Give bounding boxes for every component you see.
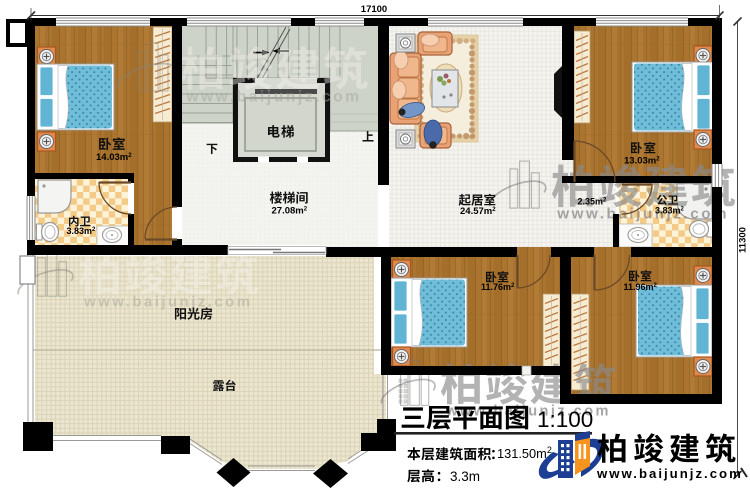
svg-text:www.baijunjz.com: www.baijunjz.com — [185, 89, 361, 106]
svg-text:www.baijunjz.com: www.baijunjz.com — [83, 294, 252, 310]
svg-text:1:100: 1:100 — [537, 407, 593, 432]
svg-text:www.baijunjz.com: www.baijunjz.com — [556, 206, 729, 223]
svg-text:27.08m2: 27.08m2 — [272, 206, 308, 217]
svg-text:14.03m2: 14.03m2 — [96, 152, 132, 163]
svg-text:13.03m2: 13.03m2 — [624, 156, 660, 167]
svg-text:2.35m2: 2.35m2 — [578, 197, 608, 207]
svg-text:3.83m2: 3.83m2 — [67, 226, 97, 236]
svg-text:www.baijunjz.com: www.baijunjz.com — [596, 466, 743, 481]
svg-text:11.96m2: 11.96m2 — [624, 282, 658, 292]
svg-text:3.3m: 3.3m — [450, 469, 480, 484]
svg-text:131.50m2: 131.50m2 — [497, 445, 552, 461]
svg-text:3.83m2: 3.83m2 — [655, 206, 685, 216]
svg-text:11300: 11300 — [738, 227, 749, 253]
svg-text:17100: 17100 — [361, 4, 387, 15]
svg-text:24.57m2: 24.57m2 — [460, 206, 496, 217]
svg-text:11.76m2: 11.76m2 — [481, 282, 515, 292]
